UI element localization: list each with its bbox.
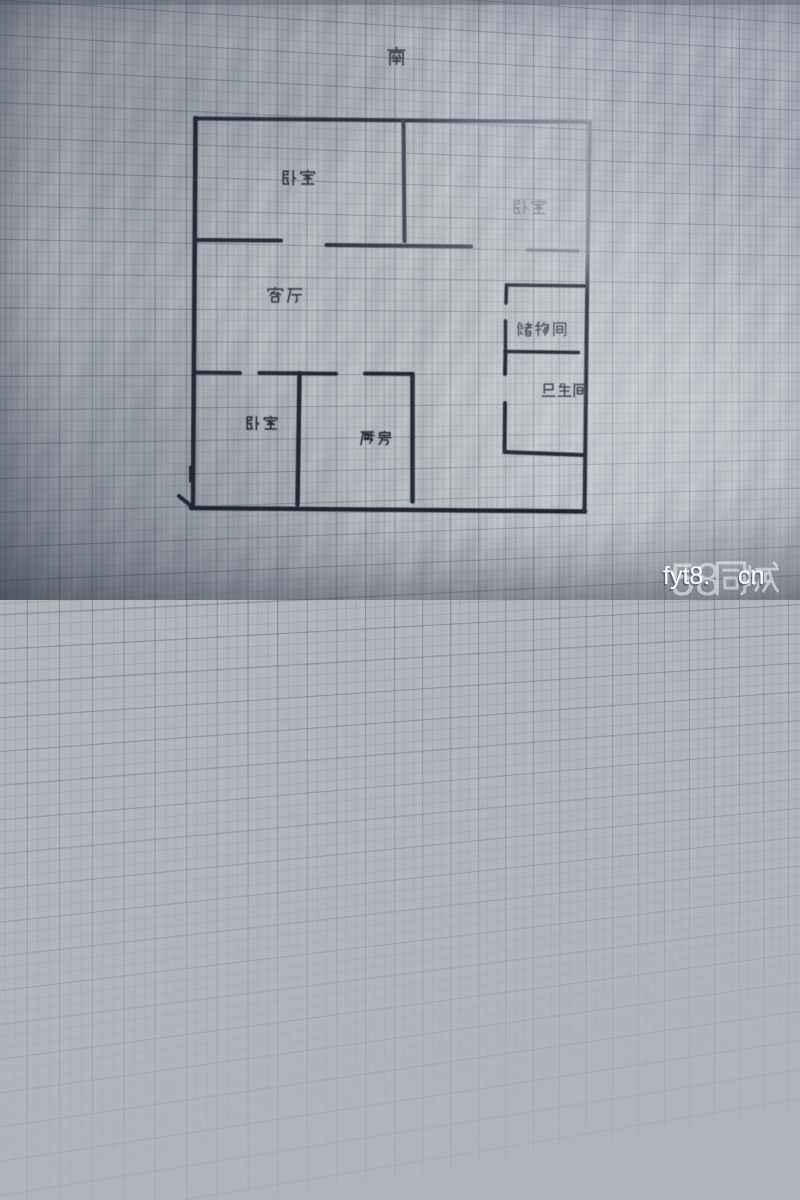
svg-text:fyt8.: fyt8. [663,562,710,590]
svg-text:cn: cn [738,562,764,590]
